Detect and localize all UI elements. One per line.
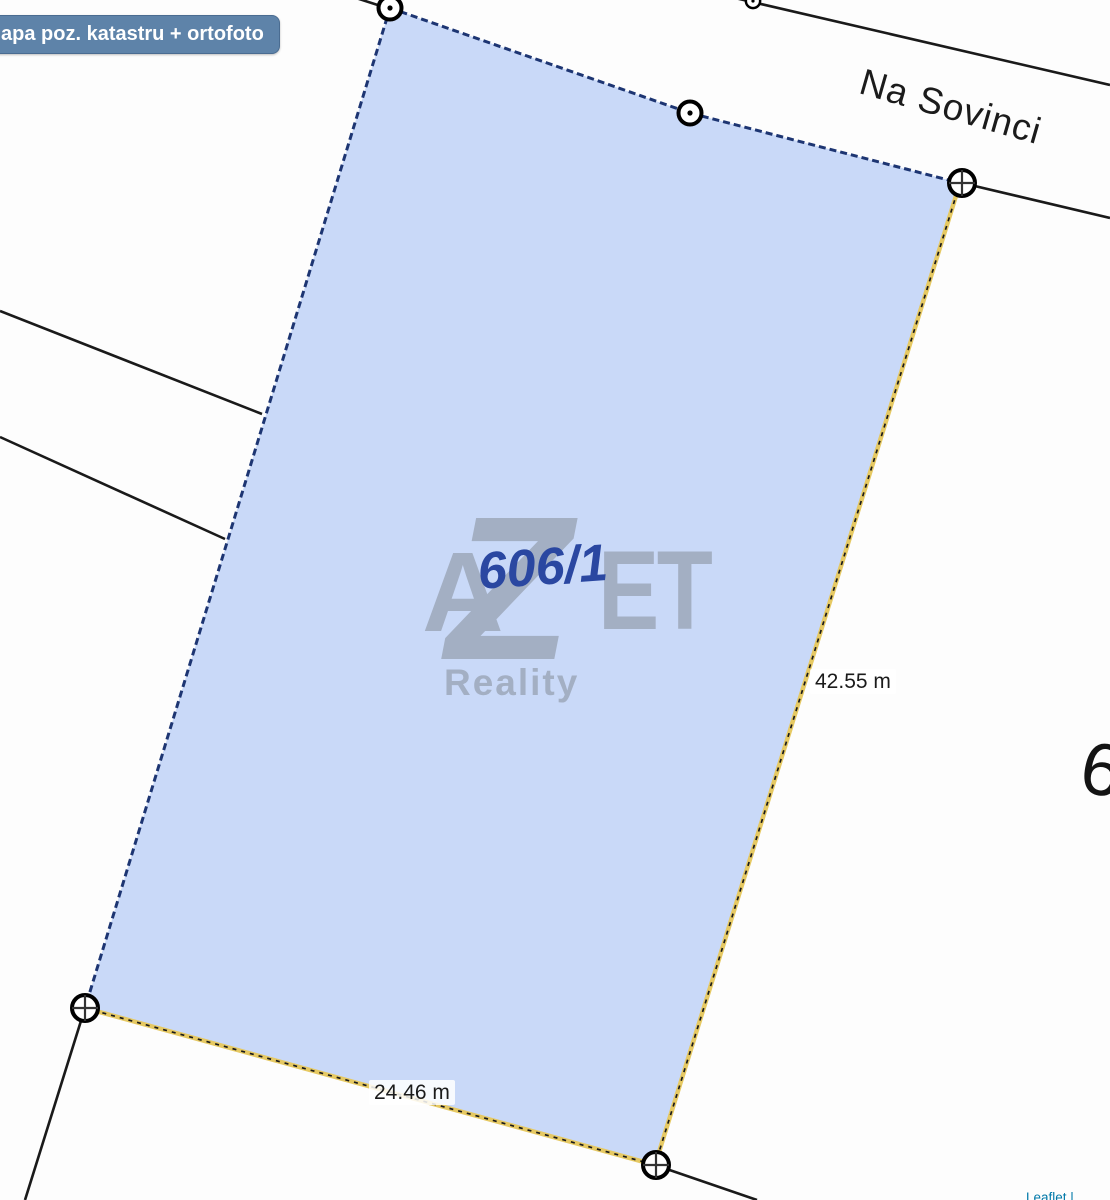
vertex-marker-dot-icon — [746, 0, 760, 8]
parcel-number-label: 606/1 — [476, 537, 609, 598]
vertex-marker-cross-icon — [643, 1152, 669, 1178]
vertex-marker-cross-icon — [72, 995, 98, 1021]
road-line-south — [962, 183, 1110, 218]
map-container[interactable]: Na Sovinci 6 A Z ET Reality 606/1 42.55 … — [0, 0, 1110, 1200]
boundary-southwest — [25, 1008, 85, 1200]
road-line-north — [735, 0, 1110, 85]
measurement-label-bottom: 24.46 m — [369, 1080, 455, 1105]
vertex-marker-dot-icon — [379, 0, 402, 20]
map-canvas[interactable] — [0, 0, 1110, 1200]
map-layer-button[interactable]: apa poz. katastru + ortofoto — [0, 15, 280, 54]
leaflet-attribution-link[interactable]: Leaflet | — [1026, 1190, 1074, 1200]
boundary-southeast — [655, 1165, 757, 1200]
neighbor-boundary-upper — [0, 311, 262, 414]
measurement-label-right: 42.55 m — [810, 669, 896, 694]
vertex-marker-dot-icon — [679, 102, 702, 125]
vertex-marker-cross-icon — [949, 170, 975, 196]
neighbor-boundary-lower — [0, 437, 225, 539]
